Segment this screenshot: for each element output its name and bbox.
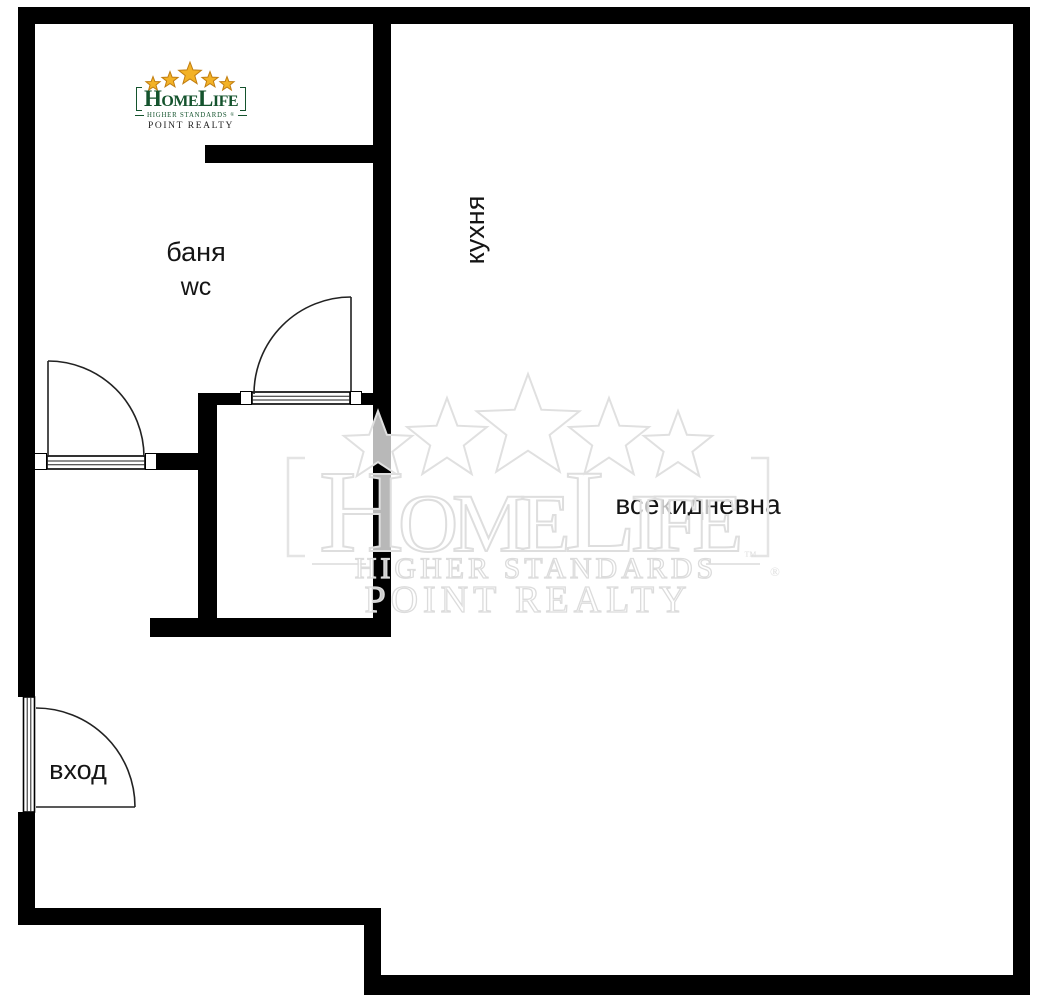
wall-outer-bottom-left [18,908,381,925]
watermark-subbrand-text: POINT REALTY [364,579,691,621]
watermark-bracket-left-icon [288,458,305,556]
bathroom-door-stop-left [34,453,47,470]
watermark-stars [344,374,712,476]
wall-bathroom-bottom-stub [157,453,198,470]
room-label-kitchen: кухня [410,165,540,295]
room-label-living-room: всекидневна [558,489,838,521]
wall-bathroom-top [205,145,373,163]
watermark-star-icon [407,398,487,474]
room-label-wc: wc [128,273,264,302]
logo-subbrand-text: POINT REALTY [135,121,247,131]
watermark-registered-mark: ® [770,564,780,579]
wall-closet-top-right [362,393,374,405]
closet-door-arc [254,297,351,394]
bathroom-door-arc [48,361,144,457]
logo-dash-right-icon [238,115,247,116]
wall-outer-bottom-right [364,975,1030,995]
wall-outer-left-upper [18,7,35,697]
logo-registered-mark: ® [230,113,235,118]
wall-hall-top [150,618,391,637]
logo-tagline: HIGHER STANDARDS® [135,112,247,119]
star-icon [179,62,202,84]
logo-brand-row: HomeLife [135,87,247,111]
watermark-star-icon [477,374,580,472]
star-icon [202,72,218,87]
brand-watermark: HomeLife HIGHER STANDARDS ™ POINT REALTY… [0,0,1058,1000]
closet-door-stop-left [240,391,252,405]
watermark-trademark-mark: ™ [744,548,757,563]
bathroom-door-threshold [47,456,145,469]
logo-brand-text: HomeLife [142,87,240,111]
brand-logo: HomeLife HIGHER STANDARDS® POINT REALTY [135,58,247,131]
watermark-tagline-text: HIGHER STANDARDS [355,552,717,585]
wall-closet-left [198,395,217,637]
watermark-star-icon [644,411,712,476]
room-label-bathroom: баня [128,237,264,268]
star-icon [162,72,178,87]
wall-kitchen-divider [373,24,391,637]
wall-outer-left-lower [18,812,35,925]
wall-closet-top-left [198,393,240,405]
logo-tagline-text: HIGHER STANDARDS [147,112,227,119]
bathroom-door-stop-right [145,453,157,470]
room-label-entrance: вход [28,755,128,786]
floor-plan: баня wc кухня всекидневна вход HomeLife … [0,0,1058,1000]
closet-door-threshold [252,392,350,404]
logo-dash-left-icon [135,115,144,116]
watermark-star-icon [569,398,649,474]
closet-door-stop-right [350,391,362,405]
wall-outer-top [18,7,1030,24]
wall-outer-right [1013,7,1030,995]
door-symbols [0,0,1058,1000]
logo-bracket-right-icon [240,87,246,111]
